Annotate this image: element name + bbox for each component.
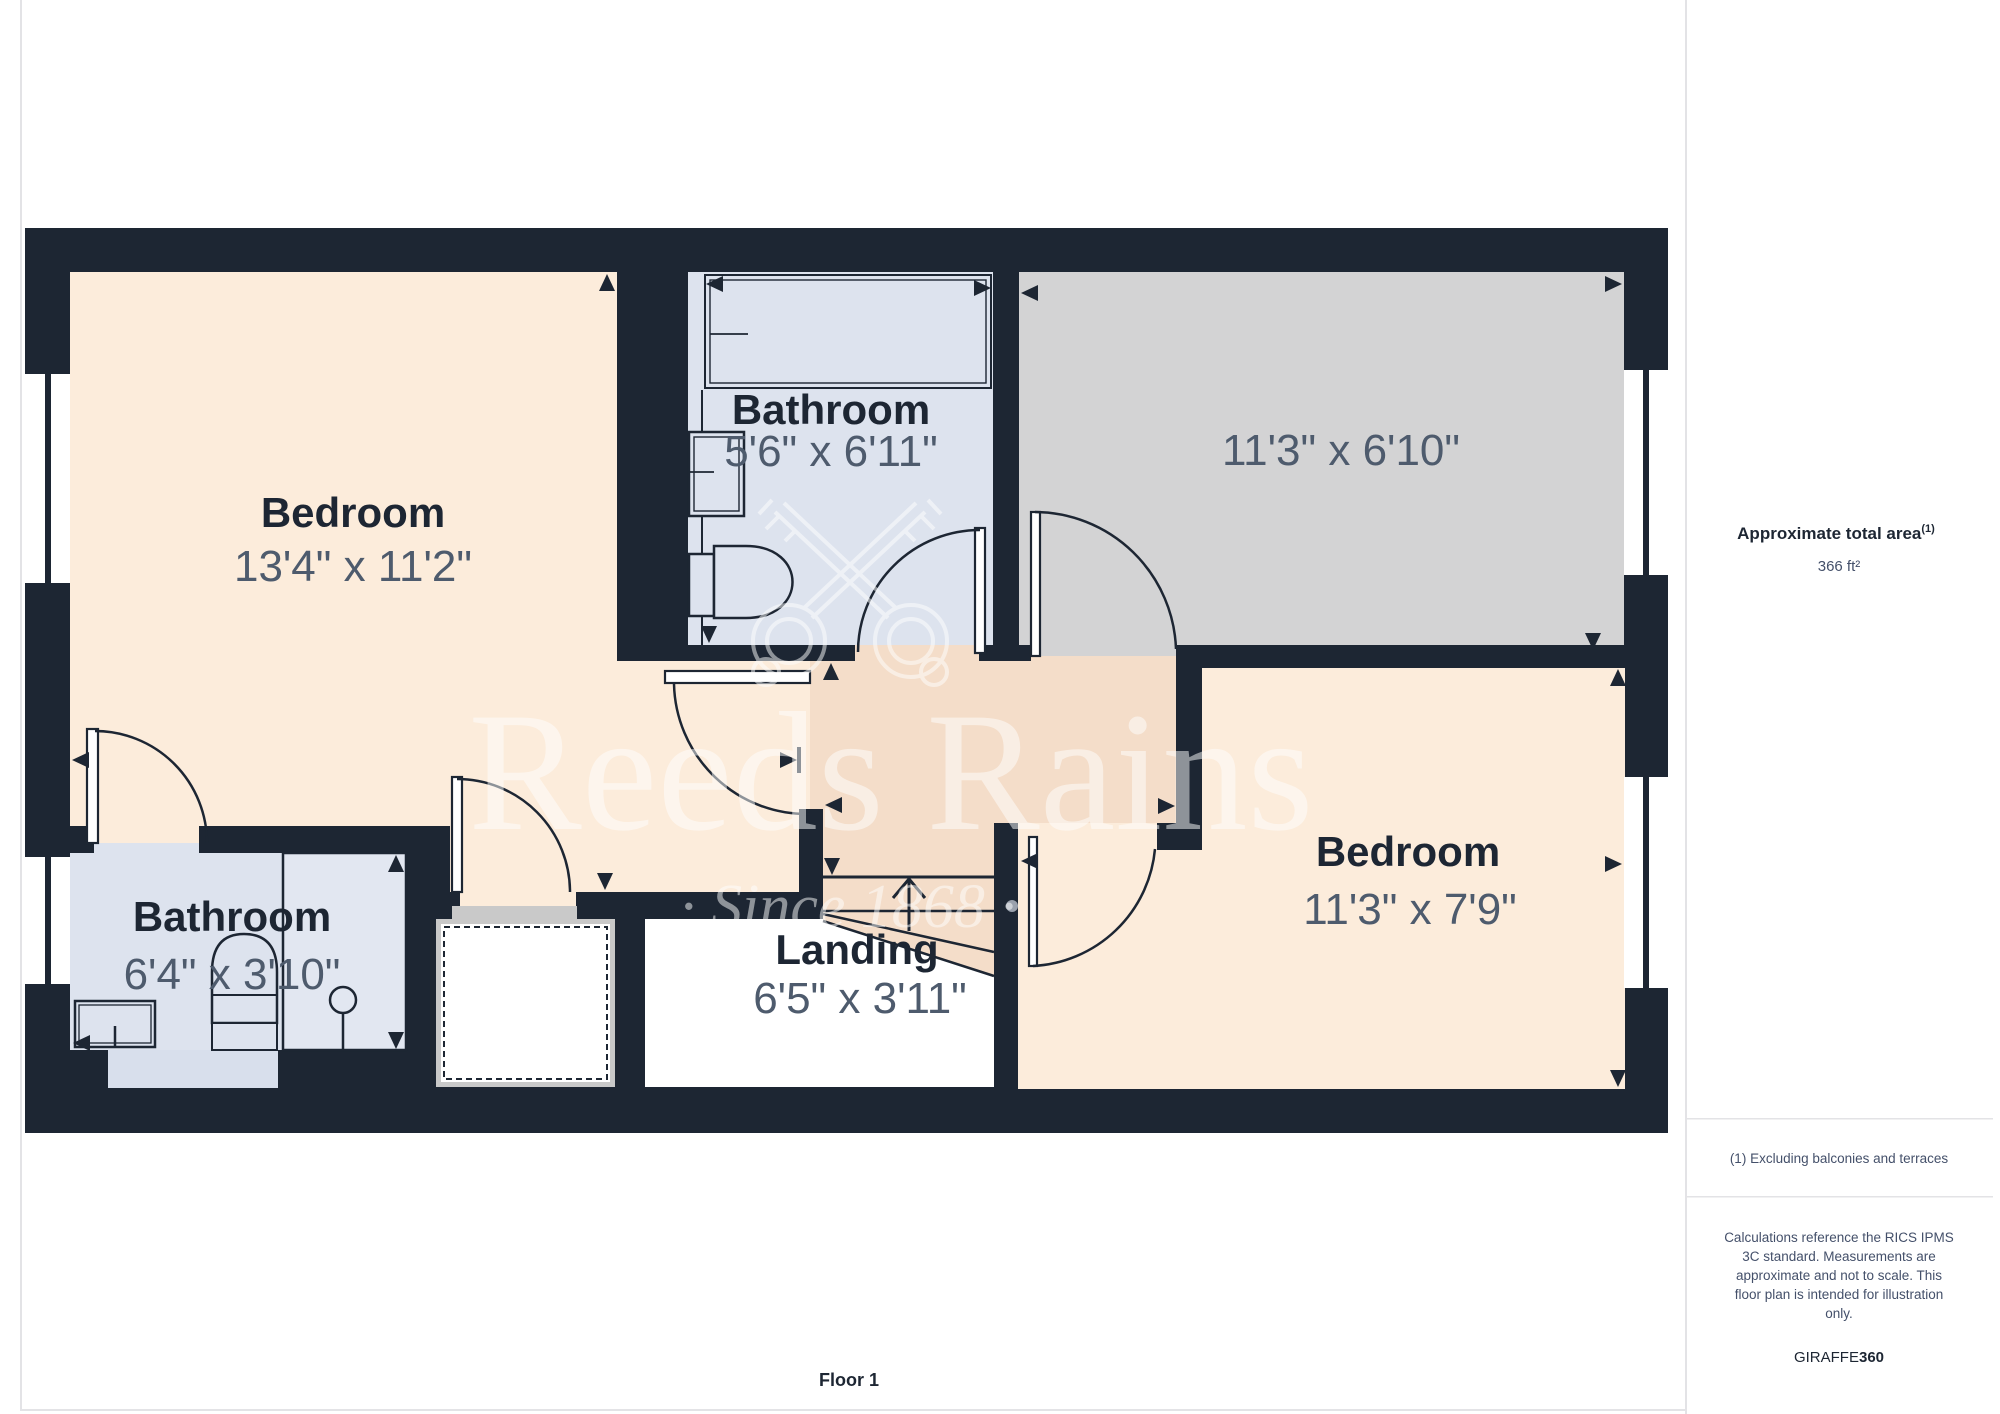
svg-text:Bedroom: Bedroom [1316,828,1500,875]
svg-text:approximate and not to scale.: approximate and not to scale. This [1736,1268,1942,1283]
svg-text:Calculations reference the RIC: Calculations reference the RICS IPMS [1724,1230,1954,1245]
svg-text:floor plan is intended for ill: floor plan is intended for illustration [1735,1287,1944,1302]
svg-text:5'6" x 6'11": 5'6" x 6'11" [724,427,938,476]
svg-text:6'4" x 3'10": 6'4" x 3'10" [124,950,341,999]
svg-text:Floor 1: Floor 1 [819,1370,879,1390]
svg-text:Landing: Landing [775,926,938,973]
svg-text:366 ft²: 366 ft² [1818,558,1861,575]
svg-text:(1) Excluding balconies and te: (1) Excluding balconies and terraces [1730,1151,1949,1166]
svg-text:Bathroom: Bathroom [732,386,930,433]
svg-text:Bathroom: Bathroom [133,893,331,940]
svg-text:Bedroom: Bedroom [261,489,445,536]
svg-text:only.: only. [1825,1306,1853,1321]
svg-text:3C standard. Measurements are: 3C standard. Measurements are [1742,1249,1936,1264]
svg-text:Reeds Rains: Reeds Rains [468,678,1313,866]
svg-text:6'5" x 3'11": 6'5" x 3'11" [753,974,967,1023]
svg-text:11'3" x 6'10": 11'3" x 6'10" [1222,426,1460,475]
svg-text:GIRAFFE360: GIRAFFE360 [1794,1349,1884,1366]
svg-text:11'3" x 7'9": 11'3" x 7'9" [1303,885,1517,934]
svg-text:13'4" x 11'2": 13'4" x 11'2" [234,542,472,591]
svg-text:Approximate total area(1): Approximate total area(1) [1737,523,1935,543]
